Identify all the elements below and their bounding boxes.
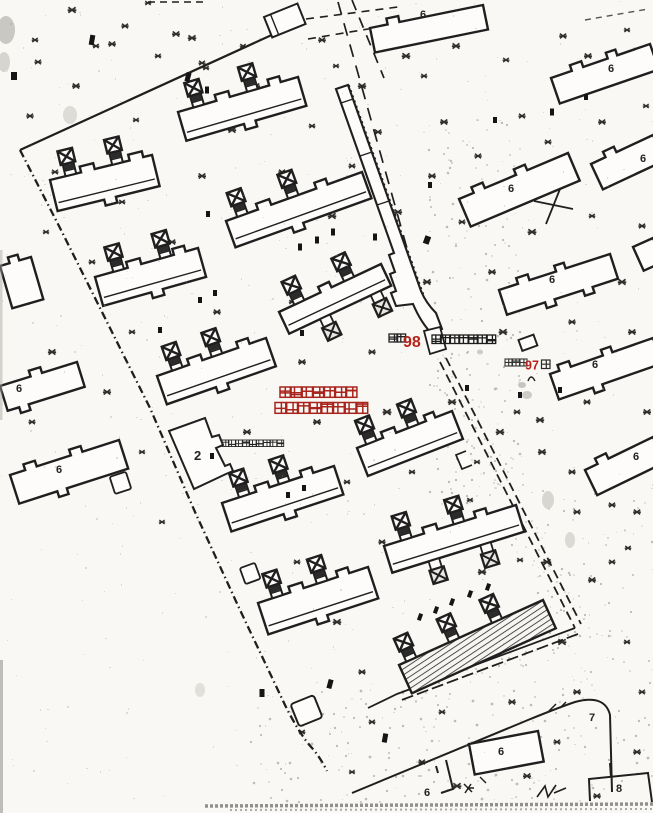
- svg-text:6: 6: [633, 451, 639, 463]
- svg-text:6: 6: [56, 464, 62, 476]
- svg-text:7: 7: [589, 712, 595, 724]
- svg-text:6: 6: [424, 787, 430, 799]
- svg-text:6: 6: [608, 63, 614, 75]
- svg-text:6: 6: [549, 274, 555, 286]
- svg-text:98: 98: [403, 334, 421, 351]
- svg-text:6: 6: [508, 183, 514, 195]
- svg-text:2: 2: [194, 448, 201, 463]
- svg-text:6: 6: [498, 746, 504, 758]
- svg-text:97: 97: [525, 359, 539, 373]
- svg-text:6: 6: [592, 359, 598, 371]
- svg-text:8: 8: [616, 783, 622, 795]
- svg-text:6: 6: [420, 9, 426, 21]
- svg-text:6: 6: [640, 153, 646, 165]
- svg-text:6: 6: [16, 383, 22, 395]
